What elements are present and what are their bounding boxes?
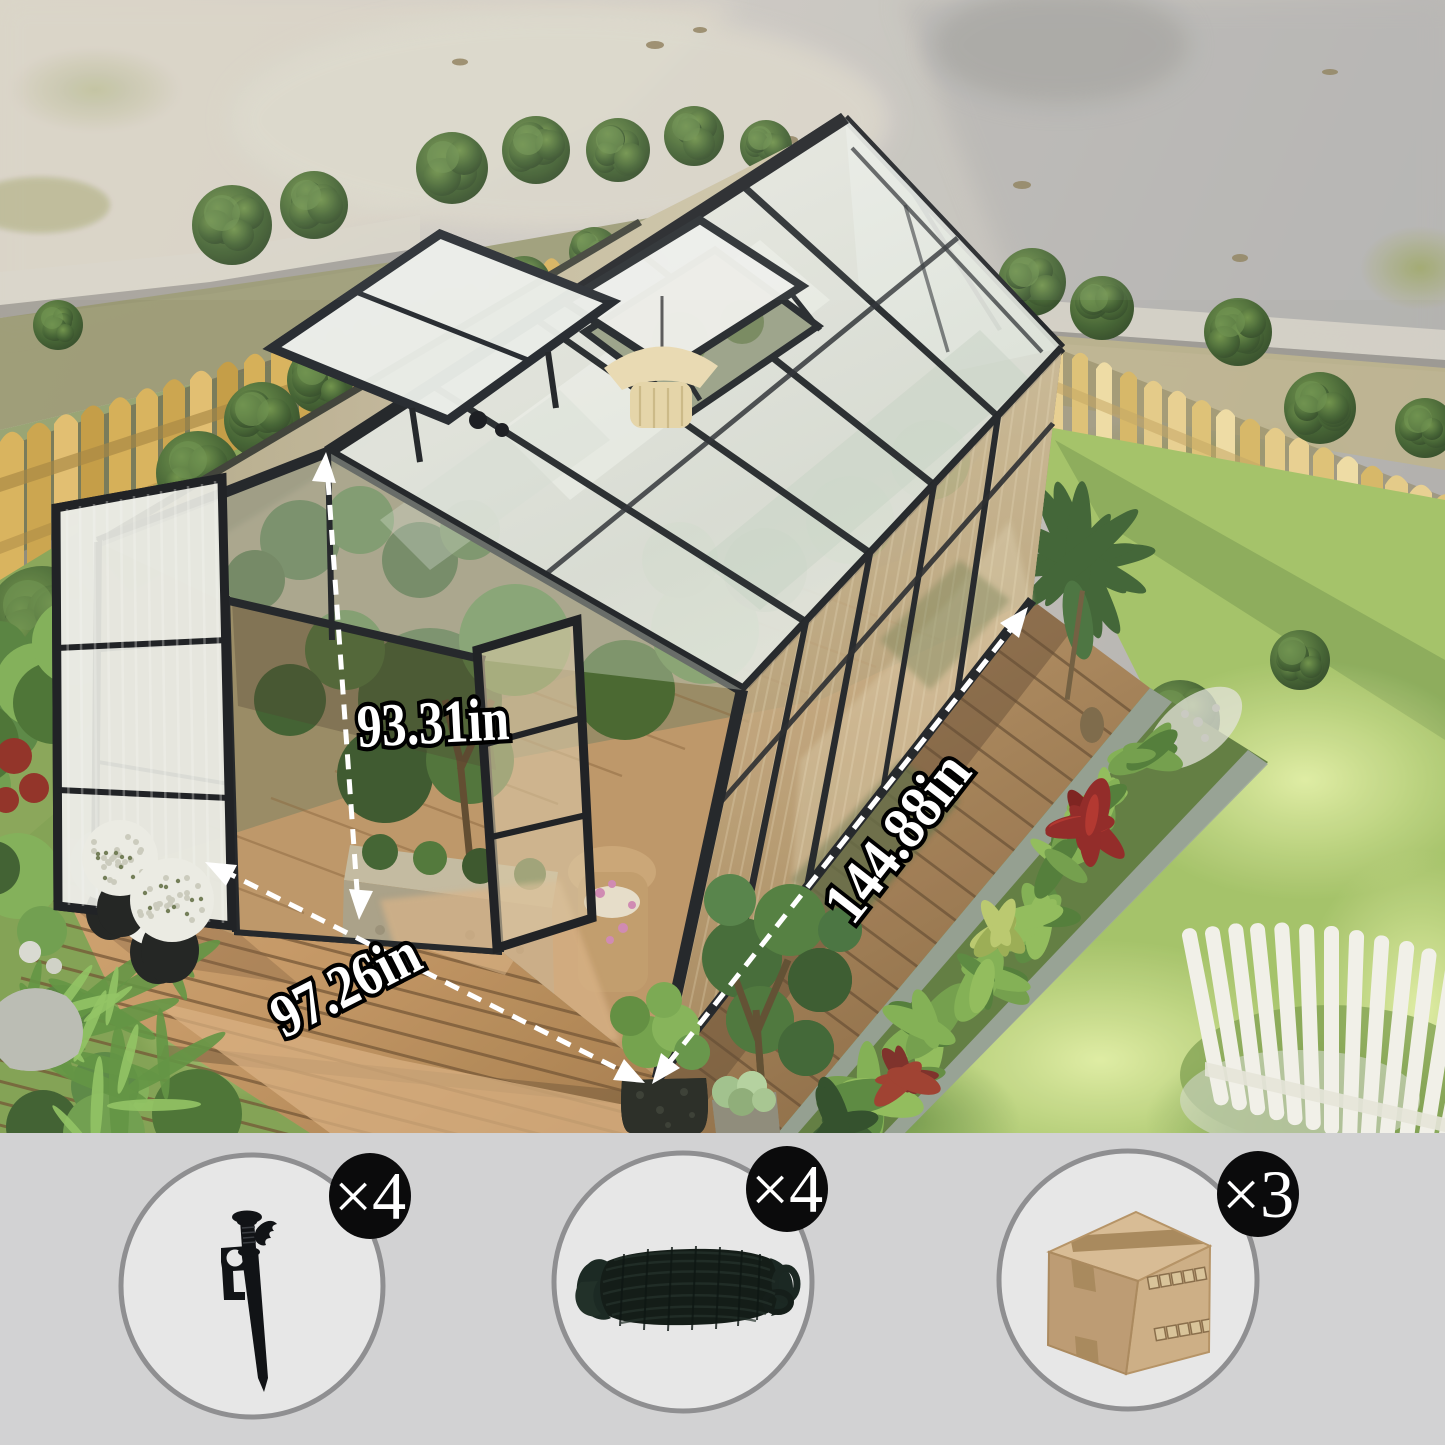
svg-text:93.31in: 93.31in (355, 686, 510, 761)
svg-text:×4: ×4 (751, 1151, 823, 1227)
svg-text:×4: ×4 (334, 1158, 406, 1234)
svg-text:×3: ×3 (1222, 1156, 1294, 1232)
